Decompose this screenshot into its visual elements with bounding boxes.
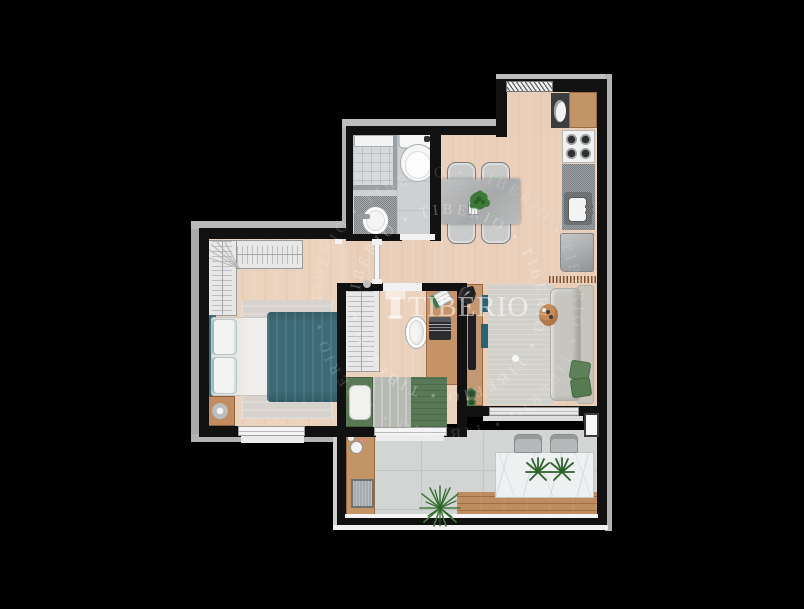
svg-text:TIBÉRIO: TIBÉRIO <box>408 290 529 323</box>
